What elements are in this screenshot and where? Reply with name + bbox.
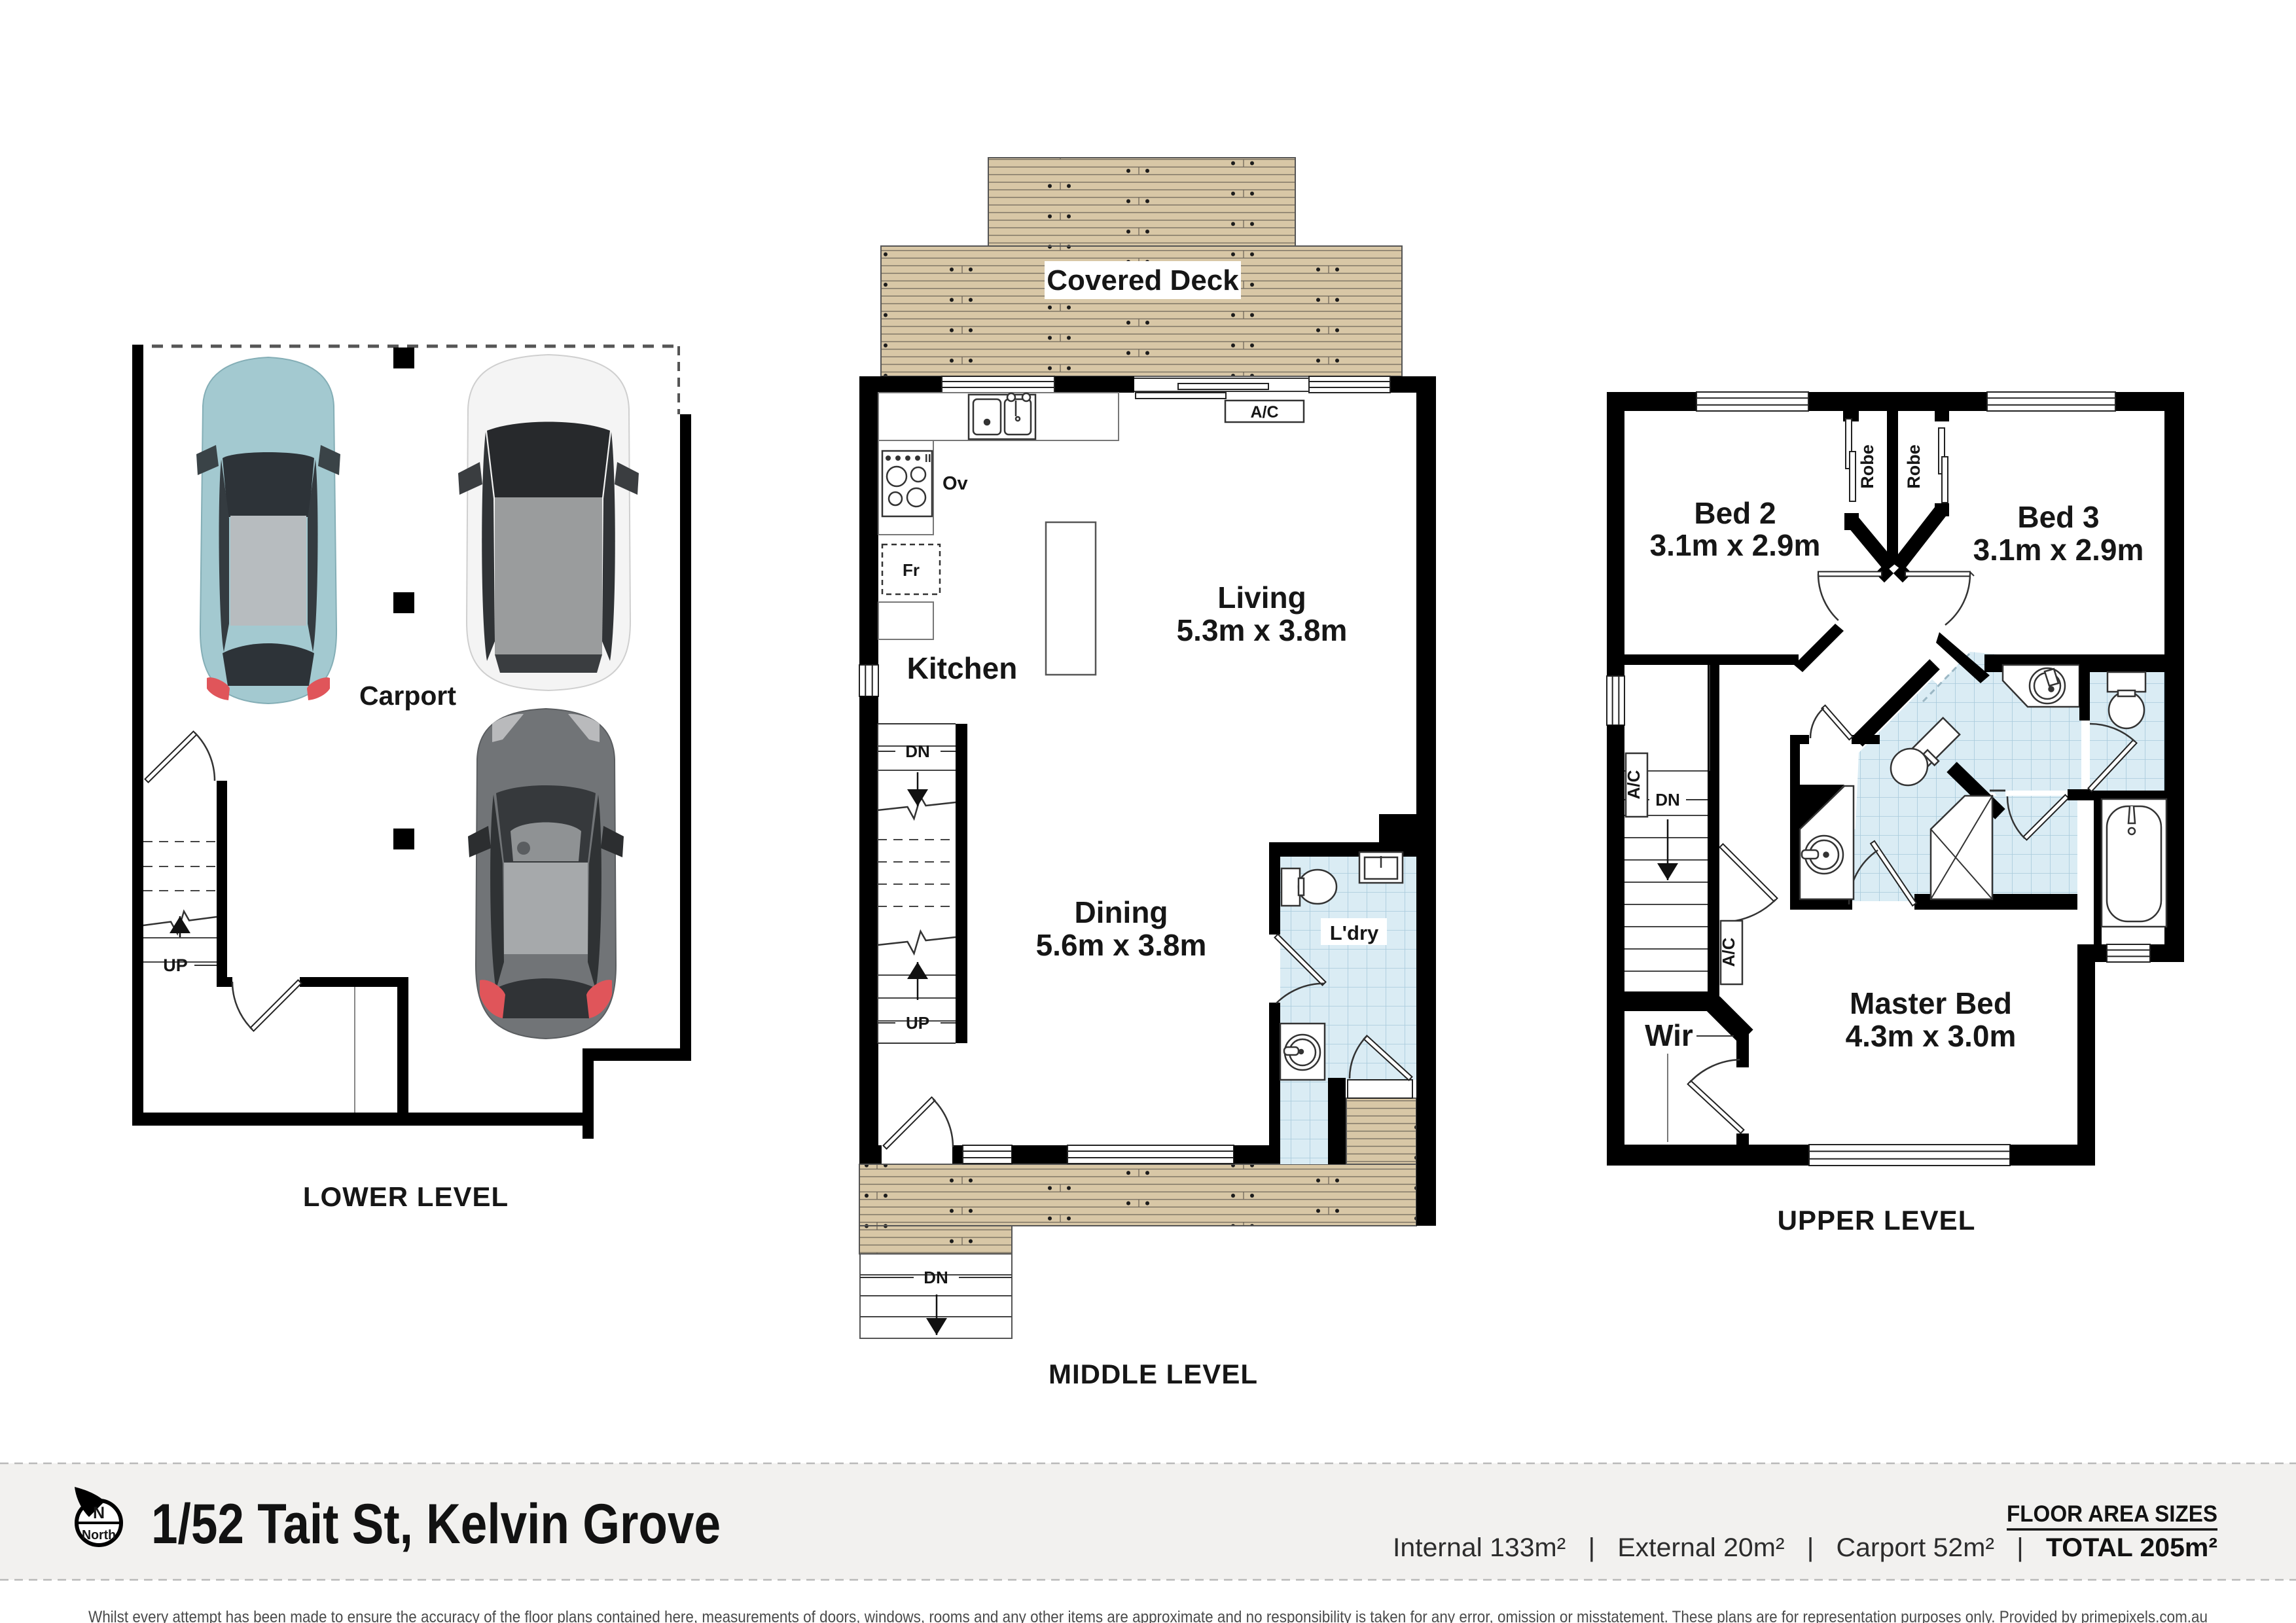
svg-text:UP: UP (906, 1013, 929, 1033)
svg-text:Covered Deck: Covered Deck (1047, 264, 1239, 296)
svg-text:1/52 Tait St, Kelvin Grove: 1/52 Tait St, Kelvin Grove (151, 1493, 721, 1556)
svg-text:DN: DN (924, 1268, 948, 1287)
svg-text:Fr: Fr (903, 560, 920, 580)
svg-text:Carport: Carport (359, 681, 456, 711)
svg-text:4.3m x 3.0m: 4.3m x 3.0m (1846, 1019, 2017, 1053)
svg-text:5.6m x 3.8m: 5.6m x 3.8m (1036, 928, 1207, 962)
svg-text:FLOOR AREA SIZES: FLOOR AREA SIZES (2007, 1501, 2217, 1527)
svg-text:Living: Living (1217, 580, 1306, 615)
svg-text:MIDDLE LEVEL: MIDDLE LEVEL (1049, 1359, 1258, 1389)
svg-text:Bed 2: Bed 2 (1694, 496, 1776, 530)
svg-text:DN: DN (905, 741, 930, 761)
svg-text:N: N (93, 1504, 105, 1522)
svg-text:UP: UP (163, 955, 188, 975)
svg-text:3.1m x 2.9m: 3.1m x 2.9m (1973, 533, 2144, 567)
svg-text:Internal 133m² | External: Internal 133m² | External 20m² | Carport… (1393, 1533, 2217, 1562)
svg-text:Wir: Wir (1645, 1018, 1693, 1052)
svg-text:Kitchen: Kitchen (907, 651, 1018, 685)
svg-text:Robe: Robe (1904, 444, 1924, 489)
svg-text:A/C: A/C (1250, 403, 1278, 421)
svg-text:DN: DN (1655, 790, 1680, 810)
svg-text:Dining: Dining (1074, 895, 1168, 929)
svg-text:A/C: A/C (1719, 937, 1738, 967)
svg-text:Whilst every attempt has been: Whilst every attempt has been made to en… (88, 1608, 2208, 1623)
svg-text:UPPER LEVEL: UPPER LEVEL (1778, 1205, 1976, 1236)
svg-text:Robe: Robe (1857, 444, 1877, 489)
svg-text:North: North (82, 1528, 116, 1543)
svg-text:5.3m x 3.8m: 5.3m x 3.8m (1177, 613, 1348, 647)
svg-text:A/C: A/C (1624, 770, 1643, 799)
svg-text:Ov: Ov (942, 473, 968, 494)
svg-text:LOWER LEVEL: LOWER LEVEL (303, 1181, 509, 1212)
svg-text:3.1m x 2.9m: 3.1m x 2.9m (1650, 528, 1821, 562)
svg-text:Bed 3: Bed 3 (2017, 500, 2099, 534)
svg-text:L'dry: L'dry (1330, 921, 1379, 944)
svg-text:Master Bed: Master Bed (1850, 986, 2012, 1020)
